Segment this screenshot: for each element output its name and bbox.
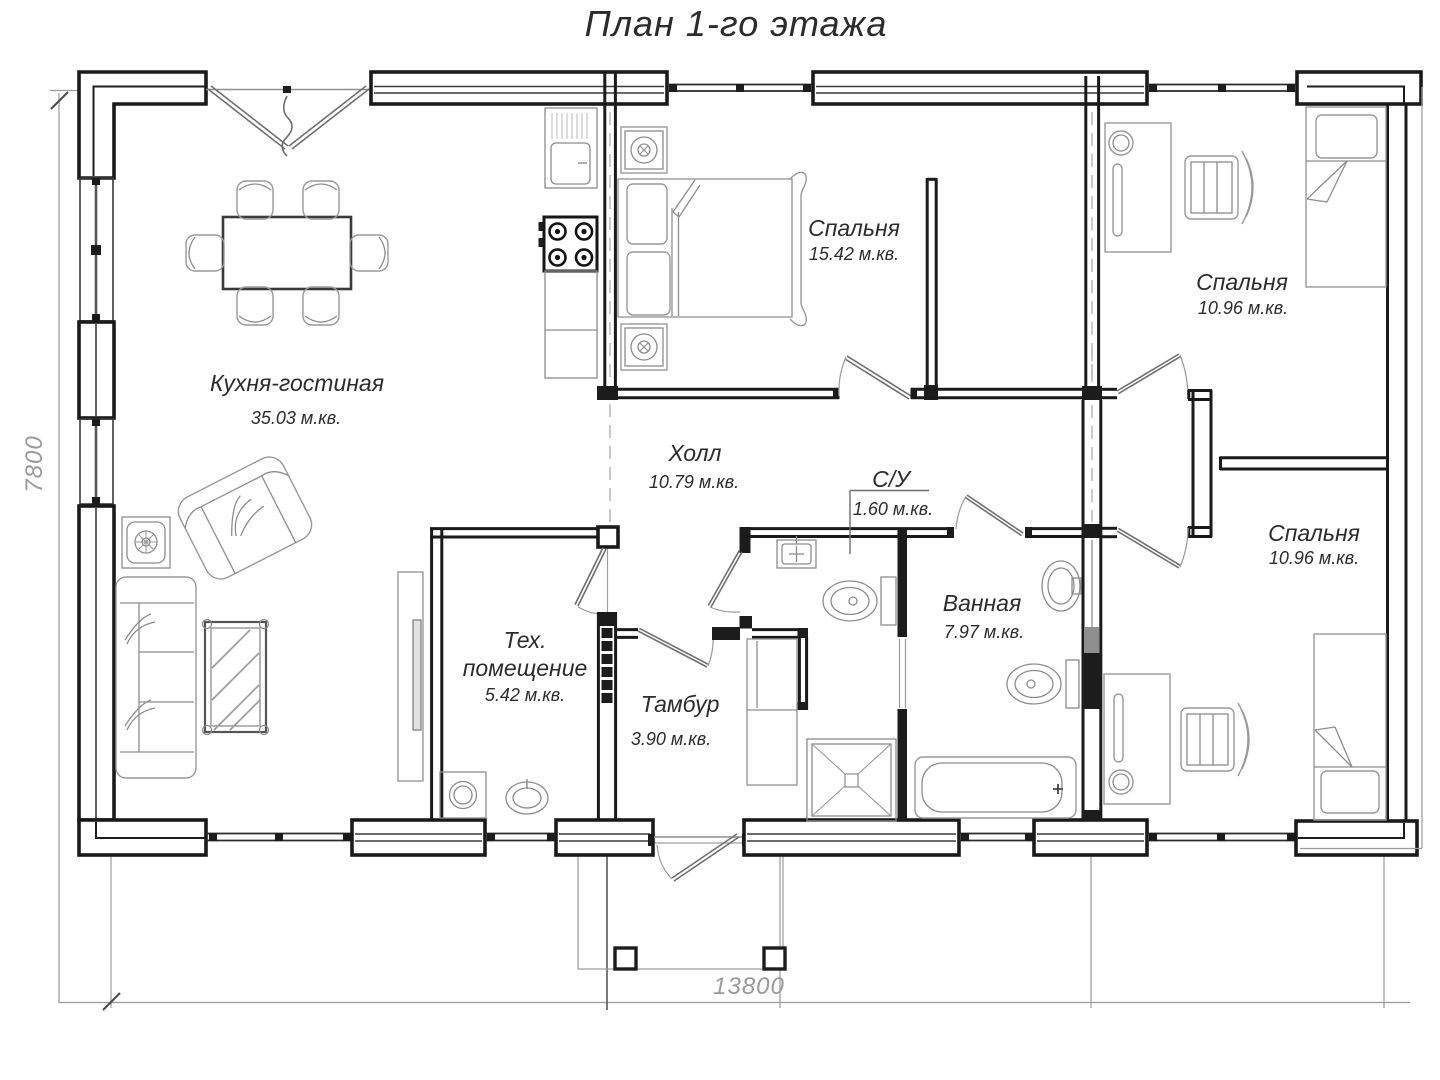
svg-text:13800: 13800 (713, 973, 785, 1000)
svg-text:Кухня-гостиная: Кухня-гостиная (210, 370, 384, 396)
svg-text:помещение: помещение (463, 655, 588, 681)
svg-text:Холл: Холл (667, 440, 721, 466)
svg-text:Тех.: Тех. (504, 627, 547, 653)
svg-text:3.90 м.кв.: 3.90 м.кв. (631, 729, 711, 749)
svg-text:35.03 м.кв.: 35.03 м.кв. (251, 408, 341, 428)
svg-text:7800: 7800 (21, 435, 48, 492)
svg-text:План 1-го этажа: План 1-го этажа (585, 3, 888, 44)
svg-text:Спальня: Спальня (1196, 269, 1288, 295)
svg-text:Ванная: Ванная (943, 590, 1022, 616)
svg-text:1.60 м.кв.: 1.60 м.кв. (853, 499, 933, 519)
svg-text:С/У: С/У (872, 466, 912, 492)
svg-text:10.79 м.кв.: 10.79 м.кв. (649, 472, 739, 492)
svg-text:15.42 м.кв.: 15.42 м.кв. (809, 244, 899, 264)
svg-text:10.96 м.кв.: 10.96 м.кв. (1269, 548, 1359, 568)
svg-text:10.96 м.кв.: 10.96 м.кв. (1198, 298, 1288, 318)
svg-text:5.42 м.кв.: 5.42 м.кв. (485, 685, 565, 705)
svg-text:Тамбур: Тамбур (641, 691, 720, 717)
svg-text:Спальня: Спальня (1268, 520, 1360, 546)
svg-text:Спальня: Спальня (808, 215, 900, 241)
svg-text:7.97 м.кв.: 7.97 м.кв. (944, 622, 1024, 642)
